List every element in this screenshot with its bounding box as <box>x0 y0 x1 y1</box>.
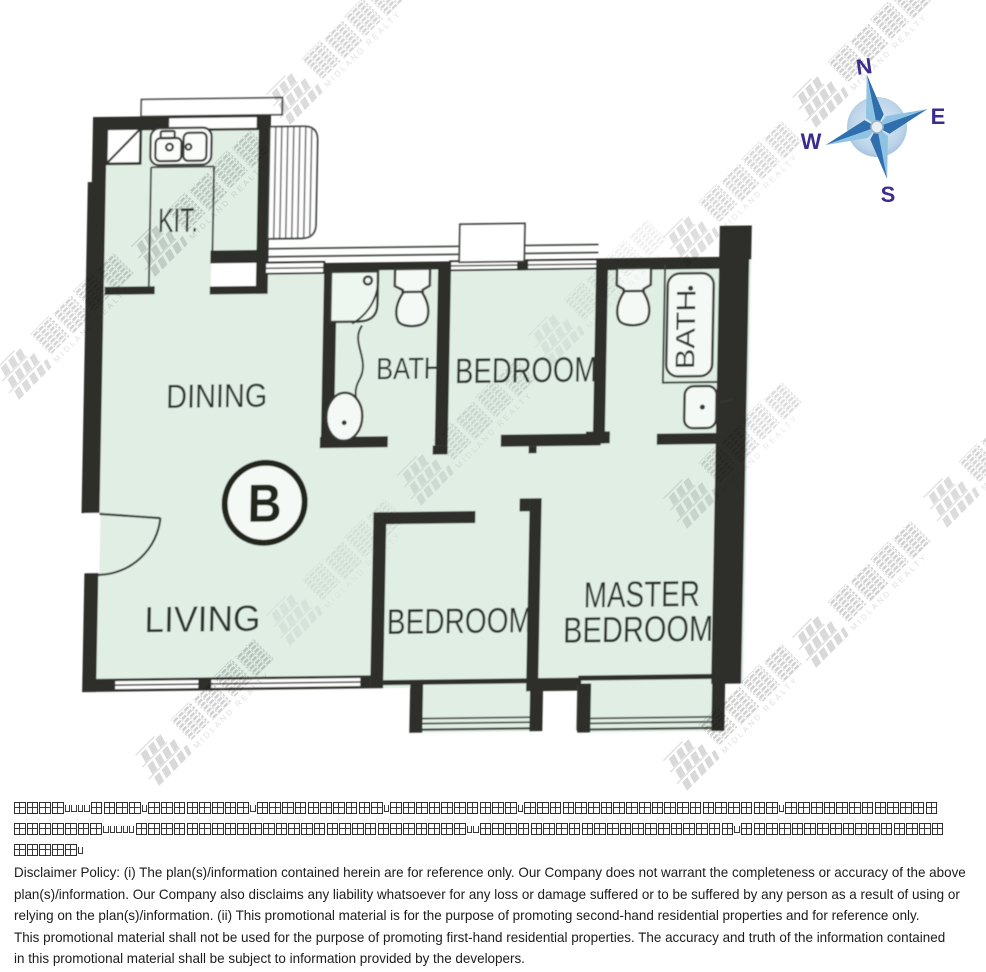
svg-text:LIVING: LIVING <box>144 598 261 641</box>
svg-text:BEDROOM: BEDROOM <box>387 601 533 642</box>
svg-text:W: W <box>801 129 822 154</box>
svg-text:S: S <box>881 182 896 207</box>
svg-text:B: B <box>247 474 282 534</box>
svg-text:DINING: DINING <box>166 377 268 415</box>
svg-text:E: E <box>931 104 946 129</box>
svg-text:BATH: BATH <box>376 350 443 386</box>
svg-text:BEDROOM: BEDROOM <box>563 608 714 651</box>
svg-text:BATH: BATH <box>670 289 702 369</box>
